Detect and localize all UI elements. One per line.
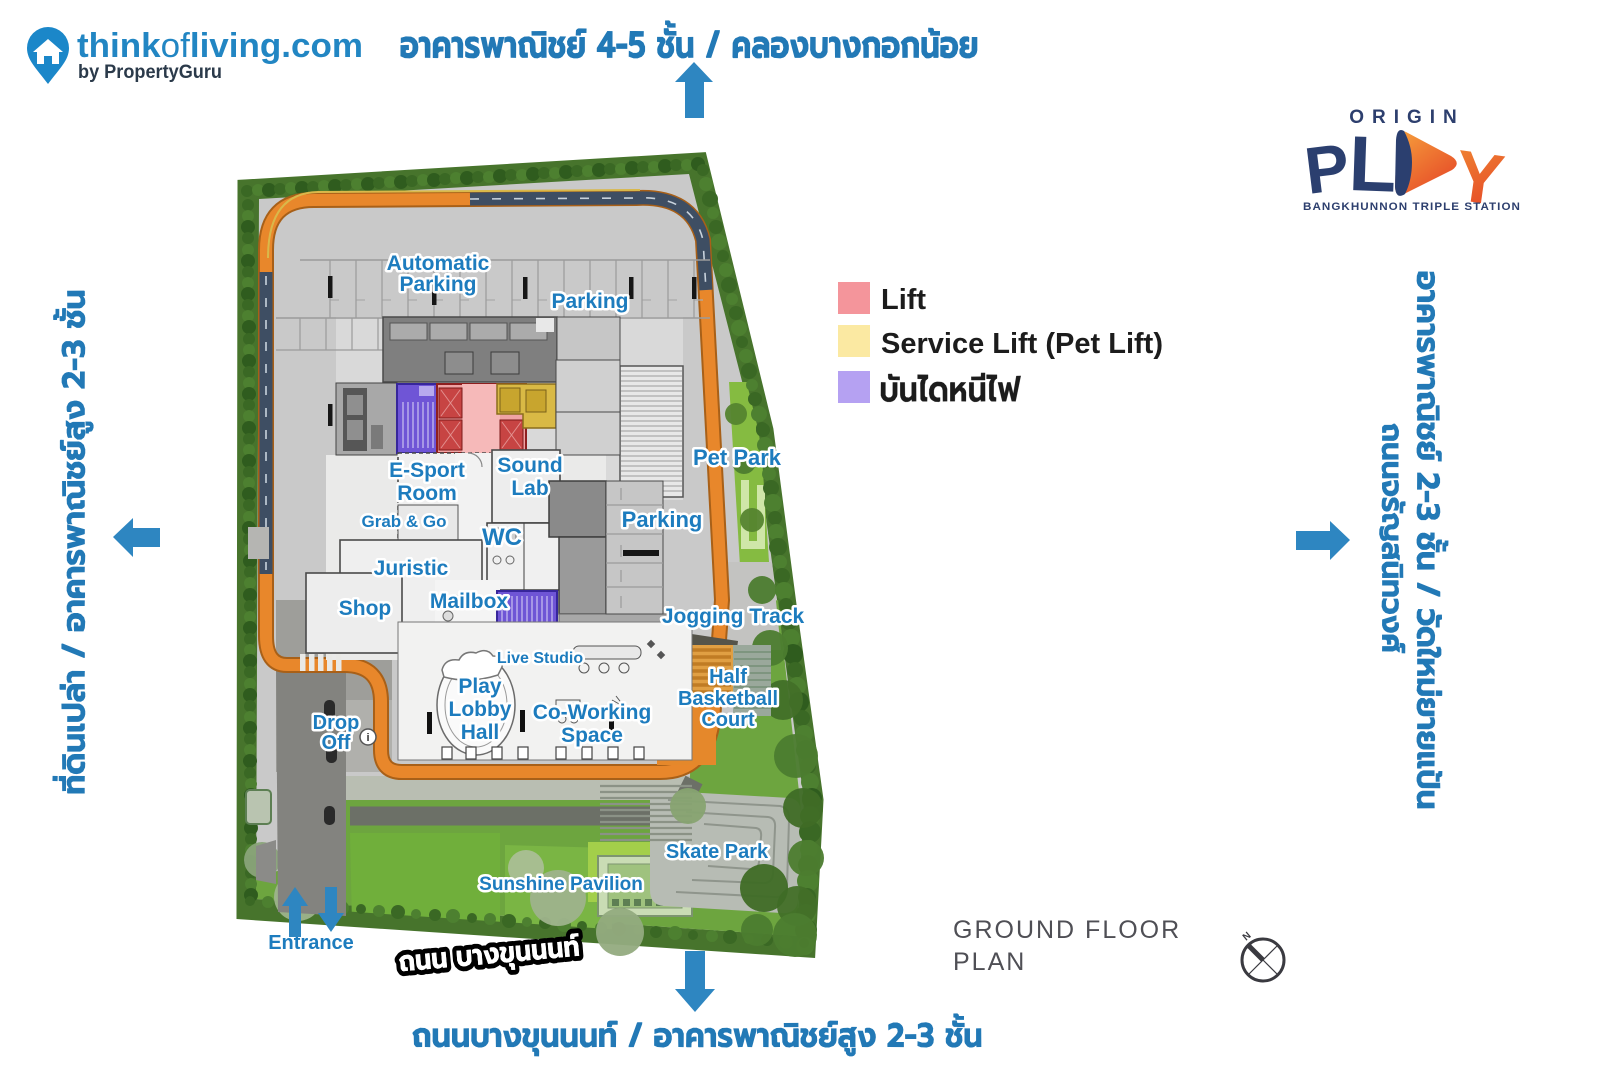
svg-text:Sound: Sound	[497, 454, 562, 477]
svg-text:PLAN: PLAN	[953, 948, 1026, 976]
svg-text:Shop: Shop	[339, 597, 392, 620]
svg-text:Co-Working: Co-Working	[533, 701, 652, 724]
svg-text:Parking: Parking	[551, 290, 628, 313]
svg-text:Play: Play	[458, 675, 502, 698]
svg-text:Court: Court	[701, 709, 755, 731]
svg-text:Jogging Track: Jogging Track	[662, 605, 805, 628]
svg-text:WC: WC	[482, 524, 522, 551]
svg-text:Lab: Lab	[511, 477, 548, 500]
svg-text:Parking: Parking	[622, 507, 703, 532]
svg-text:E-Sport: E-Sport	[389, 459, 465, 482]
svg-text:Off: Off	[322, 732, 351, 754]
svg-text:Entrance: Entrance	[268, 932, 354, 954]
svg-text:thinkofliving.com: thinkofliving.com	[77, 27, 363, 65]
svg-text:Mailbox: Mailbox	[430, 590, 508, 613]
svg-text:Sunshine Pavilion: Sunshine Pavilion	[479, 874, 643, 895]
svg-text:Room: Room	[397, 482, 457, 505]
svg-text:Grab & Go: Grab & Go	[361, 512, 446, 531]
svg-text:Half: Half	[709, 666, 747, 688]
svg-text:GROUND FLOOR: GROUND FLOOR	[953, 916, 1181, 944]
svg-text:P: P	[1301, 129, 1354, 208]
svg-text:by PropertyGuru: by PropertyGuru	[78, 62, 222, 83]
svg-text:Space: Space	[561, 724, 623, 747]
svg-text:Parking: Parking	[399, 273, 476, 296]
svg-text:L: L	[1347, 119, 1398, 209]
svg-text:Lift: Lift	[881, 284, 926, 316]
svg-text:Automatic: Automatic	[387, 252, 490, 275]
svg-text:Service Lift (Pet Lift): Service Lift (Pet Lift)	[881, 328, 1163, 360]
svg-text:Skate Park: Skate Park	[666, 841, 769, 863]
svg-text:BANGKHUNNON TRIPLE STATION: BANGKHUNNON TRIPLE STATION	[1303, 201, 1521, 213]
svg-text:Hall: Hall	[461, 721, 500, 744]
svg-text:Drop: Drop	[313, 712, 360, 734]
svg-text:Juristic: Juristic	[374, 557, 449, 580]
svg-text:Basketball: Basketball	[678, 688, 778, 710]
svg-text:Live Studio: Live Studio	[497, 650, 583, 667]
svg-text:i: i	[366, 732, 369, 744]
svg-text:Lobby: Lobby	[449, 698, 512, 721]
svg-text:Pet Park: Pet Park	[693, 445, 782, 470]
